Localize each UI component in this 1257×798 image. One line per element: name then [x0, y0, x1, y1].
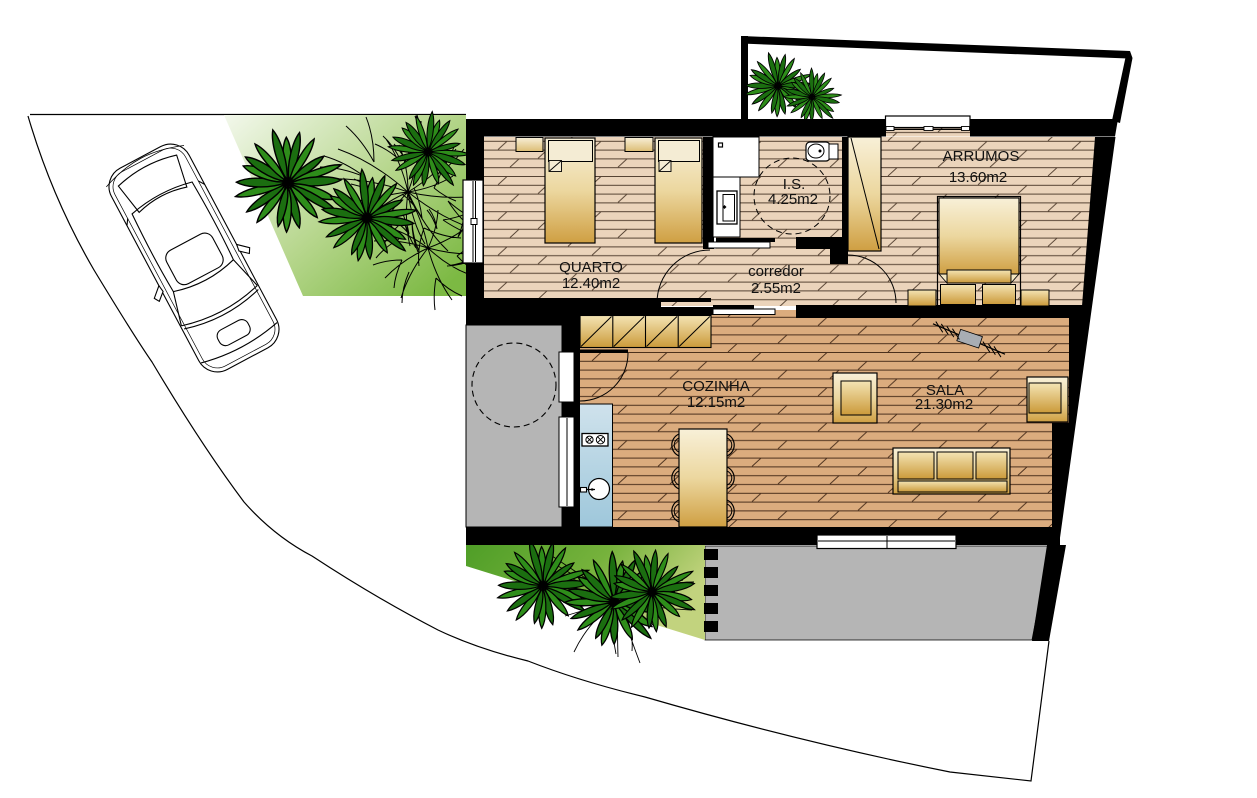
svg-text:13.60m2: 13.60m2 — [949, 169, 1007, 186]
svg-text:21.30m2: 21.30m2 — [915, 396, 973, 413]
svg-text:ARRUMOS: ARRUMOS — [943, 148, 1020, 165]
svg-text:12.15m2: 12.15m2 — [687, 394, 745, 411]
svg-text:12.40m2: 12.40m2 — [562, 275, 620, 292]
svg-text:QUARTO: QUARTO — [559, 259, 623, 276]
svg-text:corredor: corredor — [748, 263, 804, 280]
svg-text:4.25m2: 4.25m2 — [768, 191, 818, 208]
svg-text:COZINHA: COZINHA — [682, 378, 750, 395]
svg-text:2.55m2: 2.55m2 — [751, 280, 801, 297]
